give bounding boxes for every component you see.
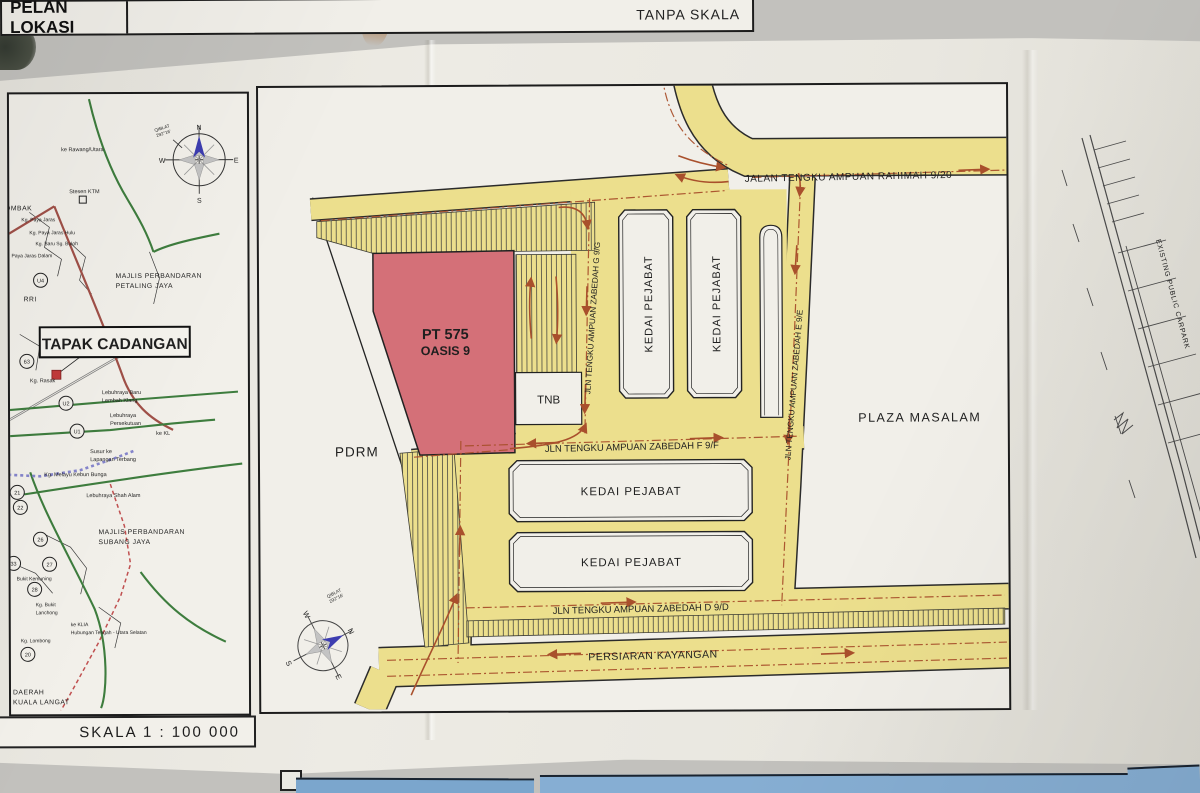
route-badge: U2 — [62, 401, 69, 407]
label-kg-baru-sg-buloh: Kg. Baru Sg. Buloh — [35, 241, 78, 247]
tnb-substation: TNB — [516, 372, 582, 424]
route-badge: 63 — [24, 360, 30, 366]
label-kg-lombong: Kg. Lombong — [21, 638, 51, 644]
route-badge: U1 — [74, 429, 81, 435]
label-ke-rawang: ke Rawang/Utara — [61, 147, 104, 153]
label-mpp-2: PETALING JAYA — [116, 283, 174, 290]
label-bukit-kemuning: Bukit Kemuning — [17, 576, 52, 582]
route-badge: 28 — [32, 588, 38, 594]
label-kg-melayu: Kg. Melayu Kebun Bunga — [44, 472, 107, 478]
label-paya-jaras-dalam: Paya Jaras Dalam — [11, 253, 52, 259]
route-badge: 20 — [25, 653, 31, 659]
label-leb-per-1: Lebuhraya — [110, 413, 137, 419]
label-leb-shah-alam: Lebuhraya Shah Alam — [86, 493, 141, 499]
building-label-kedai-1: KEDAI PEJABAT — [643, 255, 656, 352]
site-plot-number: PT 575 — [422, 327, 469, 343]
break-symbol — [1114, 413, 1133, 434]
carpark-label: EXISTING PUBLIC CARPARK — [1154, 239, 1190, 351]
municipal-boundary — [55, 484, 131, 710]
plan-title-bar: PELAN LOKASI TANPA SKALA — [0, 0, 754, 36]
site-leader-line — [60, 357, 80, 372]
location-plan: PT 575 OASIS 9 TNB KEDAI PEJABAT — [258, 84, 1009, 710]
key-plan-scale: SKALA 1 : 100 000 — [79, 723, 240, 741]
label-kg-rasak: Kg. Rasak — [30, 378, 56, 384]
plan-scale: TANPA SKALA — [128, 0, 752, 33]
label-daerah-1: DAERAH — [13, 689, 44, 696]
key-plan-panel: ke Rawang/Utara GOMBAK Stesen KTM Kg. Pa… — [7, 92, 251, 717]
area-label-pdrm: PDRM — [335, 444, 379, 459]
plan-compass-n: N — [346, 627, 356, 636]
compass-n: N — [196, 125, 201, 132]
route-badge: 21 — [14, 491, 20, 497]
compass-rose: N E S W QIBLAT 292°16' — [154, 123, 239, 205]
key-plan-map: ke Rawang/Utara GOMBAK Stesen KTM Kg. Pa… — [9, 94, 249, 711]
label-susur-2: Lapangan Terbang — [90, 457, 136, 463]
label-susur-1: Susur ke — [90, 449, 112, 455]
area-label-plaza: PLAZA MASALAM — [858, 410, 981, 425]
label-hubungan: Hubungan Tengah - Utara Selatan — [71, 630, 147, 636]
adjacent-sheet-fragment: EXISTING PUBLIC CARPARK — [1056, 128, 1200, 590]
route-badge: 22 — [17, 506, 23, 512]
key-plan-title-box: TAPAK CADANGAN — [40, 327, 190, 358]
label-mpp-1: MAJLIS PERBANDARAN — [116, 273, 202, 280]
key-plan-title: TAPAK CADANGAN — [42, 336, 188, 354]
label-ke-klia: ke KLIA — [71, 622, 89, 628]
label-stesen-ktm: Stesen KTM — [69, 189, 100, 195]
compass-e: E — [234, 158, 239, 165]
route-badge: 26 — [37, 537, 43, 543]
plan-north-arrow — [322, 630, 346, 650]
underlying-sheet-blue — [540, 773, 1132, 793]
location-plan-panel: PT 575 OASIS 9 TNB KEDAI PEJABAT — [256, 82, 1011, 714]
parking-bay-lines — [1094, 141, 1200, 560]
building-label-kedai-4: KEDAI PEJABAT — [581, 557, 682, 570]
plan-title: PELAN LOKASI — [2, 1, 128, 34]
plan-compass-w: W — [301, 610, 313, 621]
label-mps-1: MAJLIS PERBANDARAN — [98, 529, 184, 536]
site-plot-name: OASIS 9 — [421, 344, 470, 358]
route-badge: 27 — [46, 562, 52, 568]
compass-w: W — [159, 158, 166, 165]
tnb-label: TNB — [537, 394, 560, 406]
underlying-sheet-blue — [1127, 764, 1200, 793]
label-daerah-2: KUALA LANGAT — [13, 699, 70, 706]
route-badge: 33 — [10, 562, 16, 568]
underlying-sheet-blue — [296, 778, 534, 793]
label-leb-baru-1: Lebuhraya Baru — [102, 390, 141, 396]
label-mps-2: SUBANG JAYA — [98, 539, 150, 546]
building-label-kedai-3: KEDAI PEJABAT — [581, 486, 682, 499]
label-kg-paya-jaras-hulu: Kg. Paya Jaras Hulu — [29, 230, 75, 236]
compass-s: S — [197, 198, 202, 205]
lane-dashes — [1062, 170, 1135, 498]
label-leb-per-2: Persekutuan — [110, 421, 141, 427]
label-leb-baru-2: Lembah Klang — [102, 398, 138, 404]
carpark-drawing: EXISTING PUBLIC CARPARK — [1056, 128, 1200, 590]
photo-of-plan: ke Rawang/Utara GOMBAK Stesen KTM Kg. Pa… — [0, 0, 1200, 793]
label-kg-bukit-2: Lanchong — [36, 610, 58, 616]
label-kg-bukit-1: Kg. Bukit — [36, 602, 57, 608]
plan-compass-s: S — [284, 659, 294, 668]
plan-compass-e: E — [333, 673, 343, 682]
key-plan-scale-bar: SKALA 1 : 100 000 — [0, 716, 256, 749]
plan-compass-rose: N E S W QIBLAT 292°16' — [265, 587, 378, 698]
label-gombak: GOMBAK — [9, 205, 32, 212]
label-ke-kl: ke KL — [156, 431, 170, 437]
building-label-kedai-2: KEDAI PEJABAT — [711, 255, 724, 352]
carpark-road-lines — [1082, 135, 1200, 558]
label-rri: RRI — [24, 296, 37, 303]
label-kg-paya-jaras: Kg. Paya Jaras — [21, 217, 55, 223]
station-symbol — [79, 196, 86, 203]
route-badge: U4 — [37, 278, 44, 284]
